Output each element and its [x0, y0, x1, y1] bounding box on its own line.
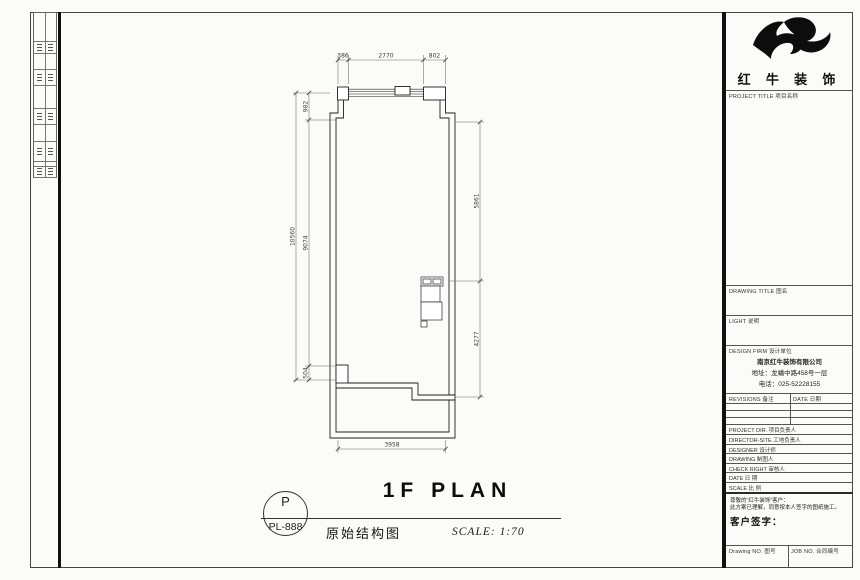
dim-top-1: 386: [337, 53, 349, 60]
person-row: SCALE 比 例: [726, 482, 853, 492]
firm-address: 地址：龙蟠中路458号一层: [726, 367, 853, 377]
project-title-label: PROJECT TITLE 项目名称: [729, 92, 798, 100]
signature-cell-row: [34, 141, 56, 162]
binding-edge: [58, 12, 61, 568]
person-row: DESIGNER 设计师: [726, 444, 853, 453]
drawing-sheet: 386 2770 802 3958 10560 982 9074 504 586…: [0, 0, 860, 580]
stamp-number: PL-888: [262, 521, 309, 533]
date-col-label: DATE 日期: [793, 395, 821, 403]
fold-signature-strip: [33, 12, 57, 178]
person-row: PROJECT DIR. 项目负责人: [726, 424, 853, 434]
person-row: DIRECTOR-SITE 工地负责人: [726, 434, 853, 444]
scale-note: SCALE: 1:70: [452, 526, 525, 538]
floor-plan-walls: [330, 87, 455, 439]
brand-name: 红 牛 装 饰: [726, 69, 853, 88]
partition-top: [348, 383, 455, 395]
dim-left-2: 9074: [303, 235, 310, 250]
dimension-ticks: [294, 58, 482, 451]
signature-cell-row: [34, 41, 56, 54]
pier-right: [424, 87, 446, 100]
wall-notch: [336, 365, 348, 383]
floor-plan: 386 2770 802 3958 10560 982 9074 504 586…: [270, 35, 570, 475]
client-note: 此方案已理解，同意按本人签字的图纸施工。: [730, 503, 840, 511]
person-row: DRAWING 制图人: [726, 453, 853, 463]
shaft-symbols: [421, 277, 443, 327]
job-no-label: JOB NO. 合同编号: [791, 547, 839, 555]
shaft-symbol: [423, 279, 431, 284]
dim-bottom: 3958: [384, 442, 399, 449]
drawing-title-label: DRAWING TITLE 图名: [729, 287, 788, 295]
dim-left-1: 982: [303, 101, 310, 113]
person-row: CHECK RIGHT 审核人: [726, 463, 853, 472]
tb-divider: [726, 345, 853, 346]
tb-divider: [726, 417, 853, 418]
light-label: LIGHT 说明: [729, 317, 759, 325]
tb-thick-divider: [726, 492, 853, 494]
signature-cell-row: [34, 108, 56, 125]
tb-divider: [726, 90, 853, 91]
shaft-symbol: [421, 321, 427, 327]
tb-divider: [726, 403, 853, 404]
revisions-label: REVISIONS 备注: [729, 395, 774, 403]
window-post: [395, 87, 410, 96]
shaft-symbol: [421, 302, 442, 320]
drawing-no-label: Drawing NO. 图号: [729, 547, 776, 555]
signature-cell-row: [34, 166, 56, 178]
client-sign-label: 客户签字：: [730, 514, 783, 528]
revisions-col-divider: [790, 393, 791, 424]
plan-title: 1F PLAN: [350, 479, 545, 503]
partition-bottom: [336, 388, 455, 400]
person-row: DATE 日 期: [726, 472, 853, 482]
dim-right-2: 4277: [474, 331, 481, 346]
dimension-labels: 386 2770 802 3958 10560 982 9074 504 586…: [290, 53, 481, 449]
window-glazing: [349, 89, 424, 96]
shaft-symbol: [433, 279, 441, 284]
dim-top-2: 2770: [378, 53, 393, 60]
firm-phone: 电话：025-52228155: [726, 378, 853, 388]
dim-left-3: 504: [303, 367, 310, 379]
shaft-symbol: [421, 286, 440, 302]
bull-logo-icon: [745, 15, 835, 63]
tb-divider: [726, 285, 853, 286]
dim-top-3: 802: [429, 53, 441, 60]
tb-divider: [726, 315, 853, 316]
tb-divider: [726, 545, 853, 546]
stamp-letter: P: [263, 494, 308, 509]
signature-cell-row: [34, 69, 56, 86]
dim-right-1: 5861: [474, 193, 481, 208]
drawing-name: 原始结构图: [326, 523, 401, 542]
firm-name: 南京红牛装饰有限公司: [726, 356, 853, 366]
dim-left-total: 10560: [290, 227, 297, 246]
tb-divider: [726, 410, 853, 411]
number-col-divider: [788, 545, 789, 568]
design-firm-label: DESIGN FIRM 设计单位: [729, 347, 792, 355]
title-underline: [261, 518, 561, 519]
pier-left: [338, 87, 349, 100]
